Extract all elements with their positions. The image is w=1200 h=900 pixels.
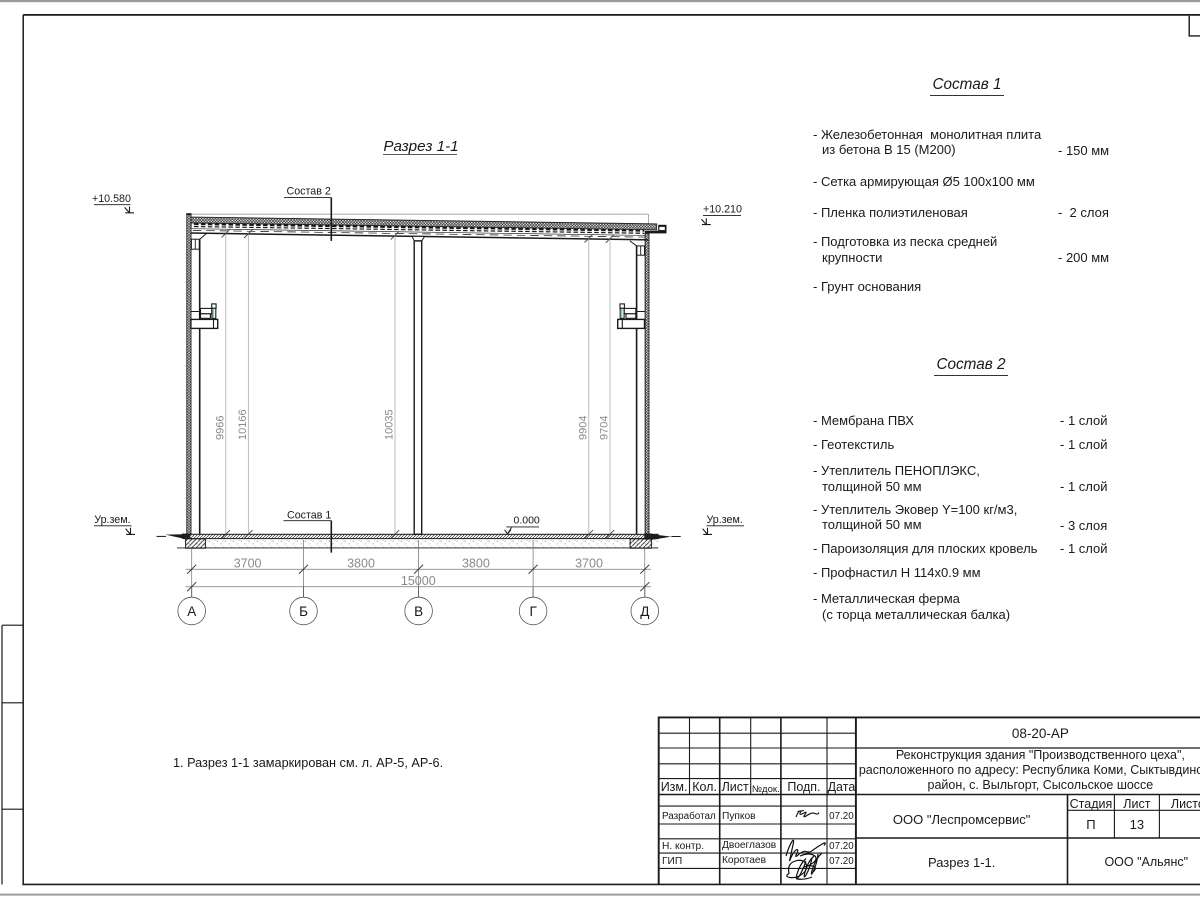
svg-text:Ур.зем.: Ур.зем. xyxy=(707,514,743,526)
svg-text:3800: 3800 xyxy=(347,556,375,570)
svg-text:А: А xyxy=(187,604,196,619)
svg-text:Состав 1: Состав 1 xyxy=(287,509,331,521)
svg-text:Ур.зем.: Ур.зем. xyxy=(94,514,130,526)
svg-text:Г: Г xyxy=(529,604,537,619)
svg-text:10166: 10166 xyxy=(237,409,249,440)
svg-text:+10.210: +10.210 xyxy=(703,204,742,216)
svg-text:3700: 3700 xyxy=(234,556,262,570)
svg-text:0.000: 0.000 xyxy=(514,514,540,526)
svg-text:Б: Б xyxy=(299,604,308,619)
svg-text:+10.580: +10.580 xyxy=(92,193,131,205)
svg-text:3800: 3800 xyxy=(462,556,490,570)
svg-text:10035: 10035 xyxy=(384,409,396,440)
svg-text:В: В xyxy=(414,604,423,619)
svg-text:9704: 9704 xyxy=(599,416,611,440)
svg-text:3700: 3700 xyxy=(575,556,603,570)
svg-text:15000: 15000 xyxy=(401,574,436,588)
svg-text:Состав 2: Состав 2 xyxy=(287,185,331,197)
svg-text:9966: 9966 xyxy=(214,416,226,440)
svg-text:9904: 9904 xyxy=(577,416,589,440)
svg-text:Д: Д xyxy=(640,604,649,619)
